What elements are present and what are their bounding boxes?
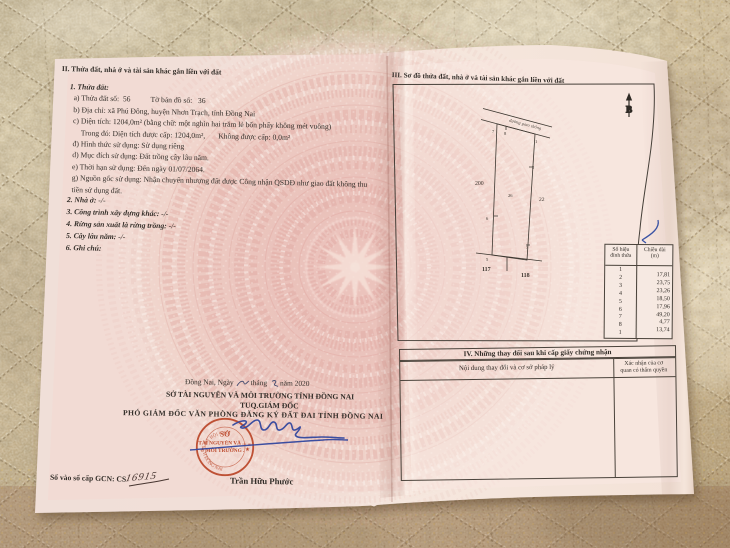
svg-text:1: 1 xyxy=(535,139,537,144)
svg-text:26: 26 xyxy=(508,193,513,198)
svg-text:B: B xyxy=(626,106,633,116)
svg-text:117: 117 xyxy=(482,267,491,273)
svg-text:2: 2 xyxy=(532,165,534,170)
svg-text:200: 200 xyxy=(475,181,484,187)
svg-text:3: 3 xyxy=(526,245,529,250)
svg-text:6: 6 xyxy=(486,216,489,221)
svg-text:118: 118 xyxy=(521,273,530,279)
svg-text:22: 22 xyxy=(539,197,545,203)
svg-text:5: 5 xyxy=(486,257,489,262)
svg-text:7: 7 xyxy=(492,129,495,134)
svg-text:8: 8 xyxy=(504,131,507,136)
